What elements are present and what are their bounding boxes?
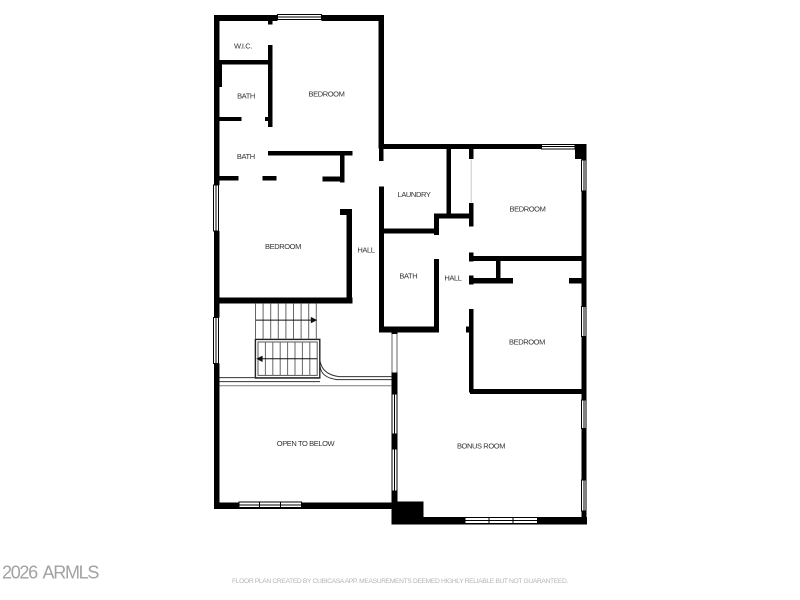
svg-text:BONUS ROOM: BONUS ROOM <box>457 441 505 450</box>
svg-text:HALL: HALL <box>444 273 461 282</box>
svg-text:BATH: BATH <box>399 271 417 280</box>
svg-text:BATH: BATH <box>237 92 255 101</box>
svg-text:BEDROOM: BEDROOM <box>265 242 301 251</box>
svg-text:LAUNDRY: LAUNDRY <box>398 190 431 199</box>
svg-text:BATH: BATH <box>237 152 255 161</box>
svg-text:HALL: HALL <box>357 246 374 255</box>
svg-text:2026 ARMLS: 2026 ARMLS <box>2 563 99 583</box>
svg-text:BEDROOM: BEDROOM <box>510 205 546 214</box>
svg-text:W.I.C.: W.I.C. <box>234 42 252 51</box>
svg-text:OPEN TO BELOW: OPEN TO BELOW <box>277 439 336 448</box>
svg-text:BEDROOM: BEDROOM <box>509 338 545 347</box>
svg-text:FLOOR PLAN CREATED BY CUBICASA: FLOOR PLAN CREATED BY CUBICASA APP. MEAS… <box>232 578 568 585</box>
svg-text:BEDROOM: BEDROOM <box>309 90 345 99</box>
